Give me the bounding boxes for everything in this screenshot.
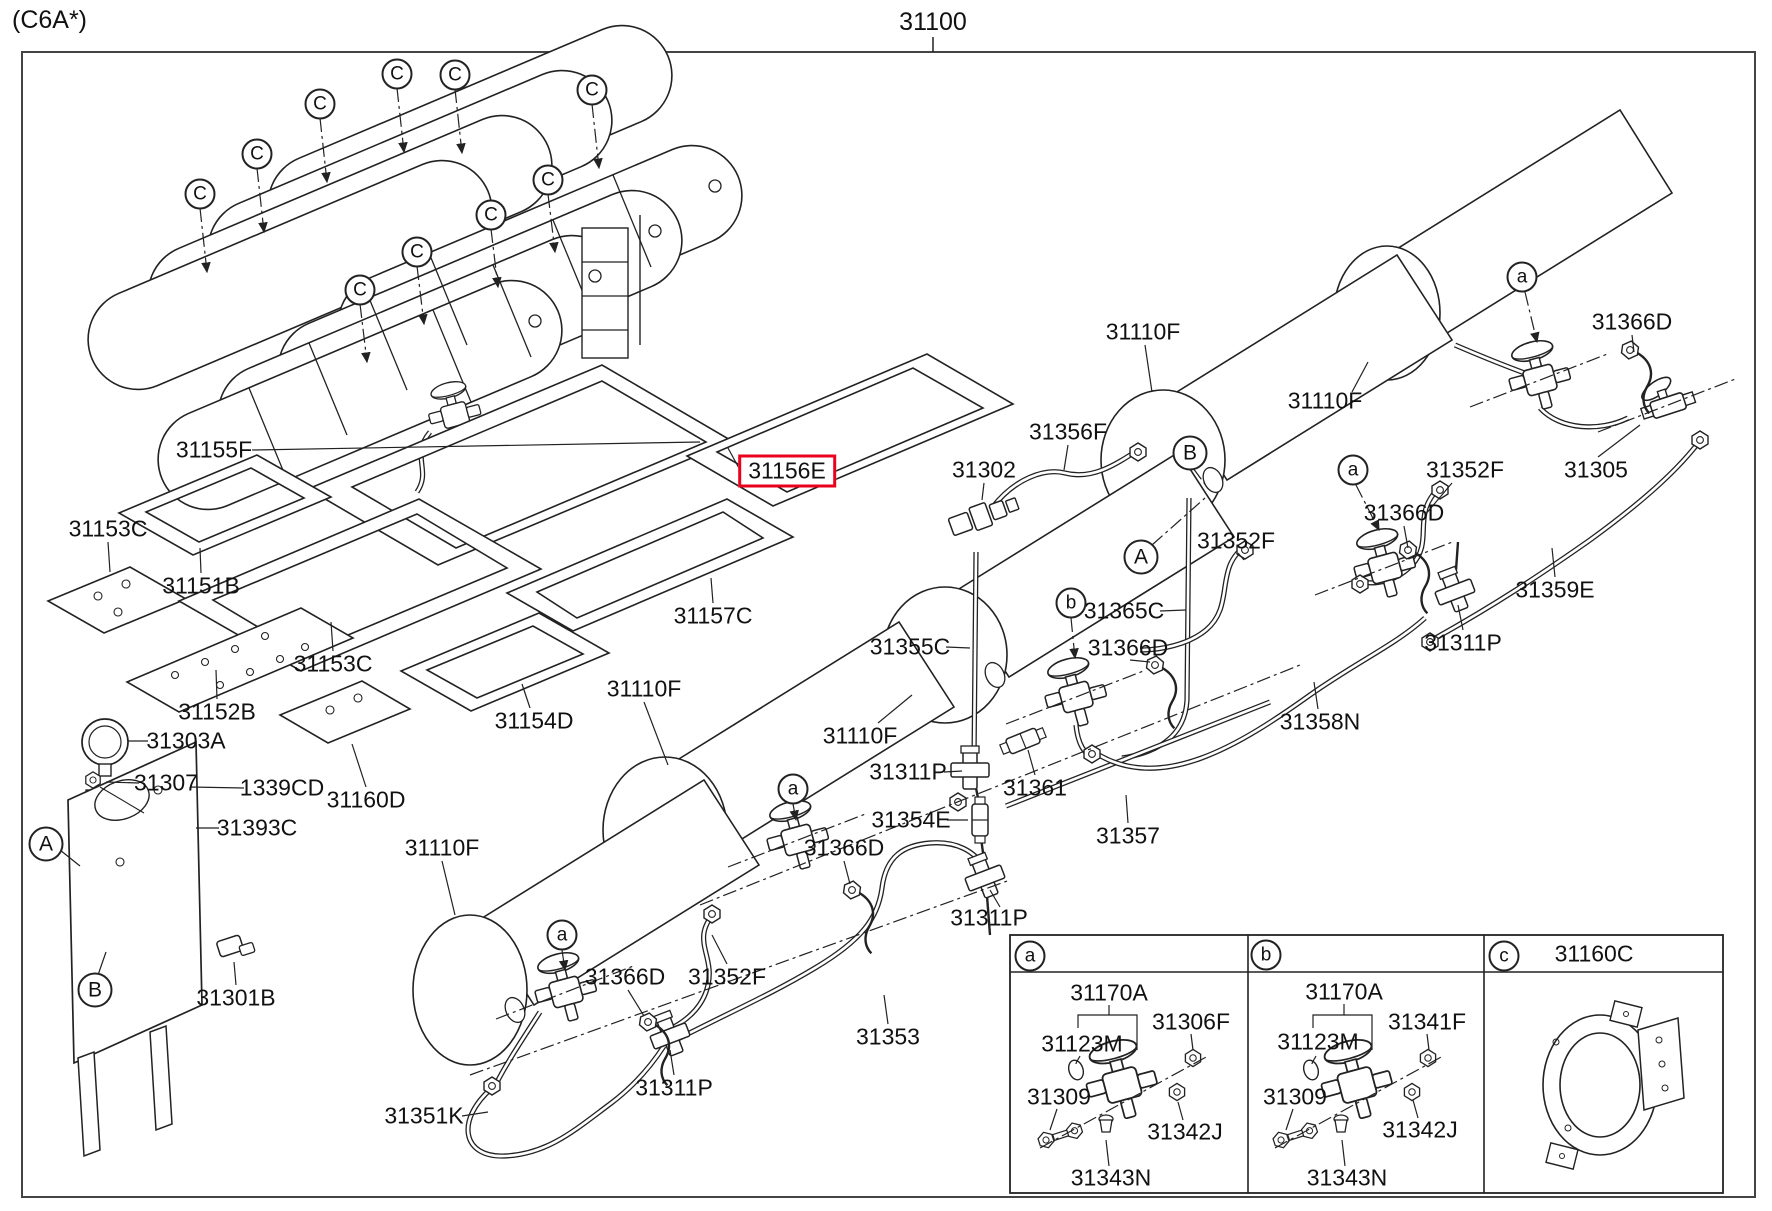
part-label: 31153C: [294, 653, 373, 676]
part-label: 31366D: [585, 966, 666, 989]
callout-B: B: [78, 973, 113, 1008]
callout-a: a: [1015, 941, 1046, 972]
part-label: 31110F: [1288, 390, 1363, 413]
coupling-31354e: [972, 797, 988, 843]
part-label: 31157C: [674, 605, 753, 628]
callout-C: C: [345, 275, 376, 306]
part-label: 31305: [1564, 459, 1628, 482]
callout-C: C: [440, 60, 471, 91]
tee-31311p: [951, 746, 989, 789]
highlighted-part-label: 31156E: [738, 455, 836, 488]
callout-a: a: [1338, 455, 1369, 486]
callout-C: C: [402, 237, 433, 268]
part-label: 31311P: [869, 761, 947, 784]
part-label: 31160D: [327, 789, 406, 812]
part-label: 31365C: [1084, 600, 1165, 623]
part-label: 31306F: [1152, 1011, 1230, 1034]
part-label: 31366D: [804, 837, 885, 860]
assembly-number: 31100: [899, 8, 967, 37]
part-label: 31160C: [1555, 943, 1634, 966]
part-label: 31301B: [196, 987, 275, 1010]
part-label: 31352F: [1426, 459, 1504, 482]
callout-C: C: [533, 165, 564, 196]
bracket-leg: [78, 1052, 100, 1156]
valve-b: [1037, 652, 1113, 733]
bracket-leg: [150, 1026, 172, 1130]
plate-31160d: [280, 681, 410, 743]
part-label: 31123M: [1277, 1031, 1358, 1054]
part-label: 31170A: [1305, 981, 1383, 1004]
part-label: 31343N: [1071, 1167, 1152, 1190]
part-label: 31366D: [1592, 311, 1673, 334]
part-label: 31366D: [1364, 502, 1445, 525]
part-label: 31311P: [950, 907, 1028, 930]
callout-b: b: [1056, 588, 1087, 619]
callout-C: C: [476, 200, 507, 231]
part-label: 31354E: [871, 809, 950, 832]
fitting-31302: [947, 492, 1021, 538]
part-label: 31154D: [495, 710, 574, 733]
part-label: 31152B: [178, 701, 256, 724]
callout-A: A: [1124, 540, 1159, 575]
callout-A: A: [29, 827, 64, 862]
part-label: 31170A: [1070, 982, 1148, 1005]
coupling-31361: [999, 725, 1048, 757]
plate-31155f: [687, 354, 1013, 506]
part-label: 31123M: [1041, 1033, 1122, 1056]
tee-31311p: [959, 849, 1010, 903]
callout-C: C: [185, 179, 216, 210]
part-label: 31342J: [1147, 1121, 1222, 1144]
part-label: 31366D: [1088, 637, 1169, 660]
part-label: 31311P: [635, 1077, 713, 1100]
callout-a: a: [547, 920, 578, 951]
variant-code: (C6A*): [12, 6, 87, 35]
part-label: 31341F: [1388, 1011, 1466, 1034]
part-label: 31110F: [1106, 321, 1181, 344]
inset-table: [1010, 935, 1723, 1193]
callout-B: B: [1173, 436, 1208, 471]
part-label: 31356F: [1029, 421, 1107, 444]
tank-dome: [413, 915, 527, 1065]
parts-diagram-page: (C6A*) 31100: [0, 0, 1772, 1211]
part-label: 31393C: [217, 817, 298, 840]
part-label: 31153C: [69, 518, 148, 541]
part-label: 31311P: [1424, 632, 1502, 655]
part-label: 31361: [1003, 777, 1067, 800]
tee-31311p: [1429, 563, 1480, 617]
fitting-31301b: [216, 935, 255, 958]
callout-C: C: [577, 75, 608, 106]
part-label: 31302: [952, 459, 1016, 482]
part-label: 31309: [1027, 1086, 1091, 1109]
part-label: 31110F: [823, 725, 898, 748]
callout-C: C: [242, 139, 273, 170]
part-label: 31343N: [1307, 1167, 1388, 1190]
part-label: 31352F: [1197, 530, 1275, 553]
callout-C: C: [382, 59, 413, 90]
callout-C: C: [305, 89, 336, 120]
part-label: 31309: [1263, 1086, 1327, 1109]
callout-a: a: [778, 774, 809, 805]
part-label: 31359E: [1515, 579, 1594, 602]
part-label: 31357: [1096, 825, 1160, 848]
part-label: 31303A: [146, 730, 225, 753]
part-label: 31352F: [688, 966, 766, 989]
callout-b: b: [1251, 940, 1282, 971]
valve-31305: [1633, 367, 1697, 422]
part-label: 31355C: [870, 636, 951, 659]
part-label: 31110F: [607, 678, 682, 701]
part-label: 31155F: [176, 439, 252, 462]
part-label: 31307: [134, 772, 198, 795]
part-label: 1339CD: [240, 777, 324, 800]
pipe-31366d: [1139, 655, 1184, 728]
part-label: 31358N: [1280, 711, 1361, 734]
part-label: 31110F: [405, 837, 480, 860]
callout-c: c: [1489, 941, 1520, 972]
part-label: 31342J: [1382, 1119, 1457, 1142]
valve-a: [1501, 335, 1577, 416]
callout-a: a: [1507, 262, 1538, 293]
part-label: 31151B: [162, 575, 240, 598]
part-label: 31353: [856, 1026, 920, 1049]
part-label: 31351K: [384, 1105, 463, 1128]
